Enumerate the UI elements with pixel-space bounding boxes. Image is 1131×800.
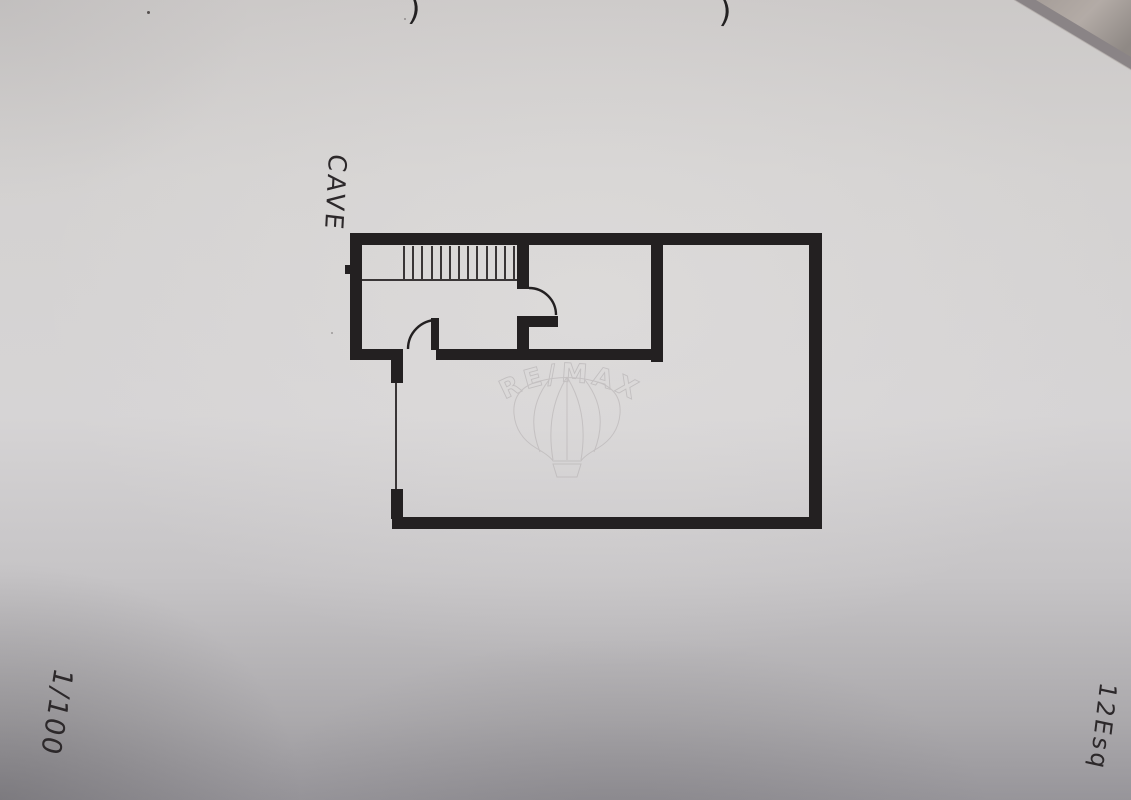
upper-door-swing-arc: [529, 288, 556, 315]
outer-top-wall: [352, 233, 822, 245]
left-opening-stub-top: [391, 358, 403, 383]
desk-corner: [1014, 0, 1131, 70]
remax-watermark: RE/MAX: [495, 358, 646, 477]
stair-side-wall: [517, 245, 529, 289]
floor-plan-scene: RE/MAX: [0, 0, 1131, 800]
lower-door-leaf: [431, 318, 439, 350]
outer-right-wall: [809, 233, 822, 529]
outer-bottom-wall: [392, 517, 822, 529]
interior-wall-right-segment: [436, 349, 663, 360]
left-opening-stub-bottom: [391, 489, 403, 519]
room-divider-wall: [651, 240, 663, 362]
door-jamb-lower: [517, 327, 529, 351]
left-wall-nub: [345, 265, 352, 274]
pen-mark-right: ): [718, 0, 732, 30]
outer-left-wall: [350, 233, 362, 360]
door-jamb-stub: [517, 316, 558, 327]
room-label: CAVE: [319, 152, 352, 233]
